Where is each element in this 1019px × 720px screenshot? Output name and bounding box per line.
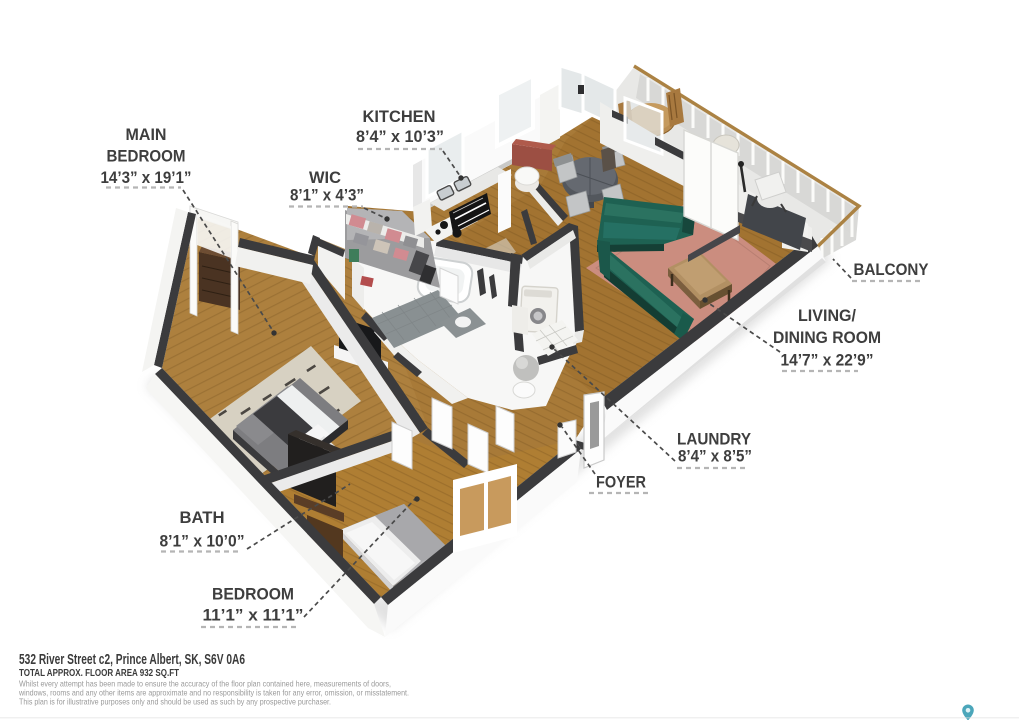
svg-text:FOYER: FOYER <box>596 473 646 492</box>
svg-text:532 River Street c2, Prince Al: 532 River Street c2, Prince Albert, SK, … <box>19 652 245 668</box>
svg-text:BEDROOM: BEDROOM <box>107 147 186 166</box>
svg-text:8’4” x 8’5”: 8’4” x 8’5” <box>678 447 752 466</box>
svg-text:8’4” x 10’3”: 8’4” x 10’3” <box>356 127 444 146</box>
svg-text:MAIN: MAIN <box>126 125 167 144</box>
svg-text:This plan is for illustrative: This plan is for illustrative purposes o… <box>19 698 331 707</box>
svg-text:DINING ROOM: DINING ROOM <box>773 328 881 347</box>
svg-text:TOTAL APPROX. FLOOR AREA 932 S: TOTAL APPROX. FLOOR AREA 932 SQ.FT <box>19 667 179 679</box>
svg-text:BATH: BATH <box>180 508 225 527</box>
svg-text:LIVING/: LIVING/ <box>798 306 856 325</box>
svg-text:WIC: WIC <box>309 168 341 187</box>
svg-text:windows, rooms and any other i: windows, rooms and any other items are a… <box>18 689 409 698</box>
svg-text:11’1” x 11’1”: 11’1” x 11’1” <box>203 606 304 625</box>
svg-text:BEDROOM: BEDROOM <box>212 585 294 604</box>
svg-text:BALCONY: BALCONY <box>854 260 930 279</box>
svg-text:8’1” x 10’0”: 8’1” x 10’0” <box>160 532 245 551</box>
svg-text:8’1” x 4’3”: 8’1” x 4’3” <box>290 186 364 205</box>
svg-text:14’3” x 19’1”: 14’3” x 19’1” <box>101 168 192 187</box>
svg-text:Whilst every attempt has been: Whilst every attempt has been made to en… <box>19 680 391 689</box>
svg-text:KITCHEN: KITCHEN <box>363 107 436 126</box>
svg-text:14’7” x 22’9”: 14’7” x 22’9” <box>781 351 874 370</box>
